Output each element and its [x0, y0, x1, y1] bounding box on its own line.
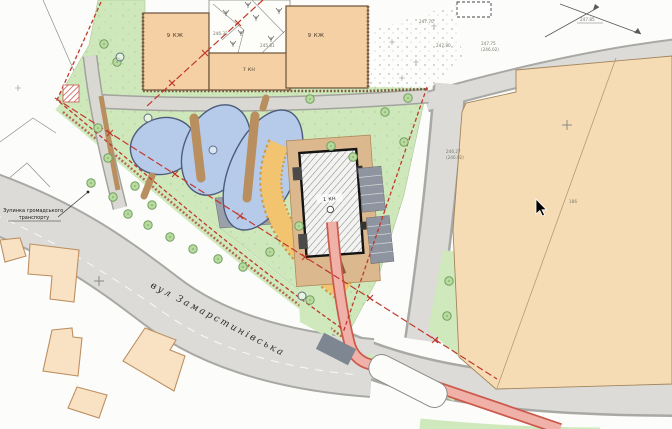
bus-stop-label-line1: Зупинка громадського	[3, 208, 63, 214]
tree-icon	[239, 263, 247, 271]
new-building-label: 1 КН	[323, 196, 336, 203]
elevation-label: 246.27	[446, 149, 461, 154]
elevation-label: 246.32	[213, 31, 228, 36]
tree-icon	[166, 233, 174, 241]
site-plan-viewport: 1 КН	[0, 0, 672, 429]
tree-icon	[306, 296, 314, 304]
tree-icon	[381, 108, 389, 116]
building-label-right: 9 КЖ	[308, 33, 325, 39]
tree-icon	[144, 221, 152, 229]
tree-icon	[109, 193, 117, 201]
elevation-label: 186	[569, 199, 577, 204]
right-block	[453, 56, 672, 389]
elevation-label: 247.80	[436, 43, 451, 48]
elevation-label: 247.75	[481, 41, 496, 46]
tree-icon	[131, 182, 139, 190]
building-annex	[292, 167, 302, 181]
building-label-mid: 7 КН	[243, 67, 255, 73]
tree-icon	[87, 179, 95, 187]
tree-icon	[104, 154, 112, 162]
tree-icon	[148, 201, 156, 209]
bus-stop-label-line2: транспорту	[19, 215, 50, 221]
tree-icon	[400, 138, 408, 146]
legend-box	[457, 2, 491, 17]
building-annex	[360, 222, 367, 230]
tree-icon	[349, 153, 357, 161]
tree-icon	[214, 255, 222, 263]
tree-icon	[94, 124, 102, 132]
tree-icon	[306, 95, 314, 103]
tree-icon	[100, 40, 108, 48]
building-callout-circle	[327, 206, 334, 213]
tree-icon	[124, 210, 132, 218]
tree-icon	[189, 245, 197, 253]
building-label-left: 9 КЖ	[167, 33, 184, 39]
elevation-label: (246.02)	[481, 47, 499, 52]
elevation-label: 245.81	[260, 43, 275, 48]
tree-icon	[443, 312, 451, 320]
tree-icon	[445, 277, 453, 285]
tree-icon	[295, 222, 303, 230]
tree-icon	[266, 248, 274, 256]
building-9kzh-right	[286, 6, 368, 88]
site-plan-map[interactable]: 1 КН	[0, 0, 672, 429]
tree-icon	[327, 142, 335, 150]
elevation-label: 247.70	[419, 19, 434, 24]
elevation-label: (246.02)	[446, 155, 464, 160]
demolition-hatch	[63, 85, 79, 102]
elevation-label: 247.85	[580, 17, 595, 22]
building-annex	[298, 234, 308, 250]
tree-icon	[404, 94, 412, 102]
building-9kzh-left	[143, 13, 209, 90]
